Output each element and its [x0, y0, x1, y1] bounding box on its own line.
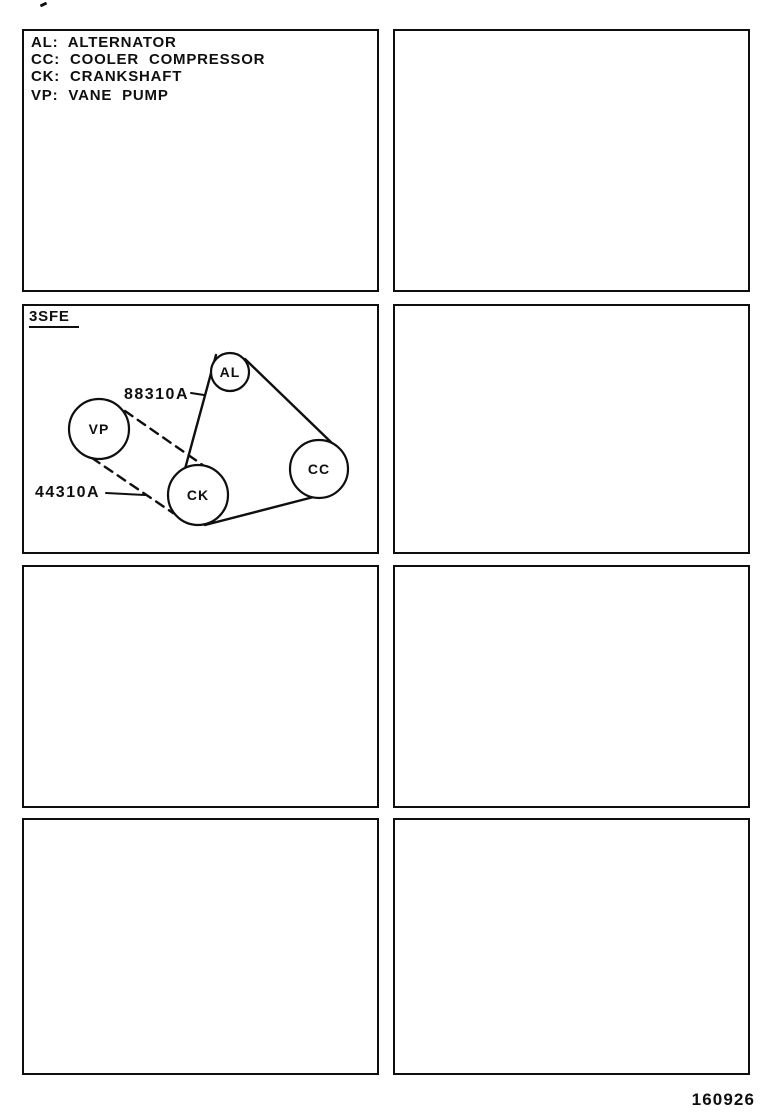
pulley-label-al: AL — [220, 364, 241, 380]
part-number-88310A: 88310A — [124, 386, 189, 403]
panel-empty-4 — [393, 304, 750, 554]
leader-line-88310A — [191, 393, 204, 395]
panel-legend: AL: ALTERNATOR CC: COOLER COMPRESSOR CK:… — [22, 29, 379, 292]
scan-speck — [40, 2, 48, 8]
leader-line-44310A — [106, 493, 145, 495]
belt-line-al-cc — [245, 359, 335, 446]
belt-routing-diagram: AL VP CK CC 88310A 44310A — [24, 306, 377, 552]
pulley-label-cc: CC — [308, 461, 330, 477]
parts-catalog-page: AL: ALTERNATOR CC: COOLER COMPRESSOR CK:… — [0, 0, 760, 1112]
legend-item-alternator: AL: ALTERNATOR — [31, 35, 373, 52]
panel-empty-2 — [393, 29, 750, 292]
belt-line-vp-ck-upper-dashed — [125, 411, 207, 468]
legend-item-vane-pump: VP: VANE PUMP — [31, 88, 373, 105]
legend-item-cooler-compressor: CC: COOLER COMPRESSOR — [31, 52, 373, 69]
panel-empty-8 — [393, 818, 750, 1075]
part-number-44310A: 44310A — [35, 484, 100, 501]
belt-line-vp-ck-lower-dashed — [92, 458, 173, 513]
panel-empty-5 — [22, 565, 379, 808]
legend: AL: ALTERNATOR CC: COOLER COMPRESSOR CK:… — [24, 31, 377, 105]
pulley-label-ck: CK — [187, 487, 209, 503]
panel-empty-7 — [22, 818, 379, 1075]
legend-item-crankshaft: CK: CRANKSHAFT — [31, 69, 373, 86]
panel-empty-6 — [393, 565, 750, 808]
figure-code: 160926 — [692, 1090, 755, 1110]
pulley-label-vp: VP — [89, 421, 110, 437]
panel-belt-diagram: 3SFE AL VP — [22, 304, 379, 554]
